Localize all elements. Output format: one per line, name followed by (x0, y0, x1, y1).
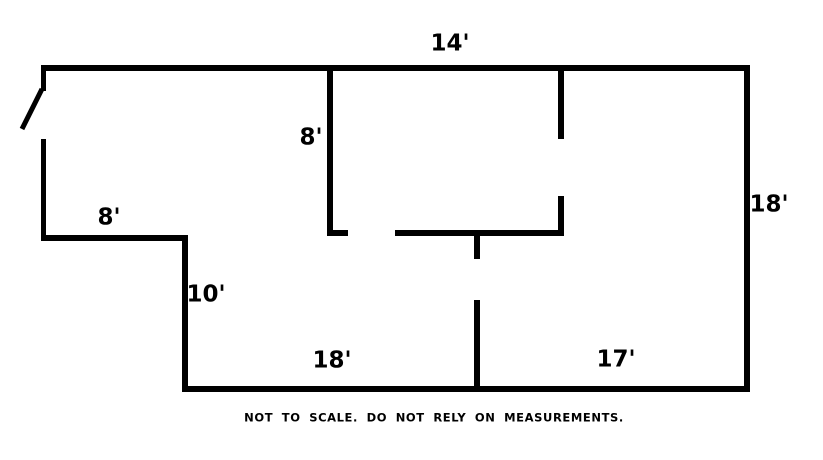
dimension-label-left-step-height: 10' (186, 284, 225, 307)
lower-interior-wall (474, 300, 480, 392)
right-interior-wall-lower (558, 196, 564, 236)
left-wall-lower (41, 139, 46, 241)
floor-plan: NOT TO SCALE. DO NOT RELY ON MEASUREMENT… (0, 0, 823, 460)
dimension-label-left-wing-width: 8' (97, 207, 120, 230)
dimension-label-bottom-left-width: 18' (312, 350, 351, 373)
dimension-label-bottom-right-width: 17' (596, 349, 635, 372)
top-wall (41, 65, 750, 71)
dimension-label-right-wall-height: 18' (749, 194, 788, 217)
middle-interior-wall (327, 65, 333, 236)
right-interior-wall-upper (558, 65, 564, 139)
disclaimer-text: NOT TO SCALE. DO NOT RELY ON MEASUREMENT… (244, 412, 624, 424)
left-wall-upper-stub (41, 65, 46, 91)
right-wall (744, 65, 750, 392)
dimension-label-middle-wall-height: 8' (299, 127, 322, 150)
open-door-leaf-icon (22, 89, 42, 129)
bottom-wall (182, 386, 750, 392)
middle-wall-bottom-stub (327, 230, 348, 236)
left-step-wall (182, 235, 188, 392)
hallway-stub-wall (474, 233, 480, 259)
left-wing-bottom-wall (41, 235, 188, 241)
dimension-label-top-width: 14' (430, 33, 469, 56)
